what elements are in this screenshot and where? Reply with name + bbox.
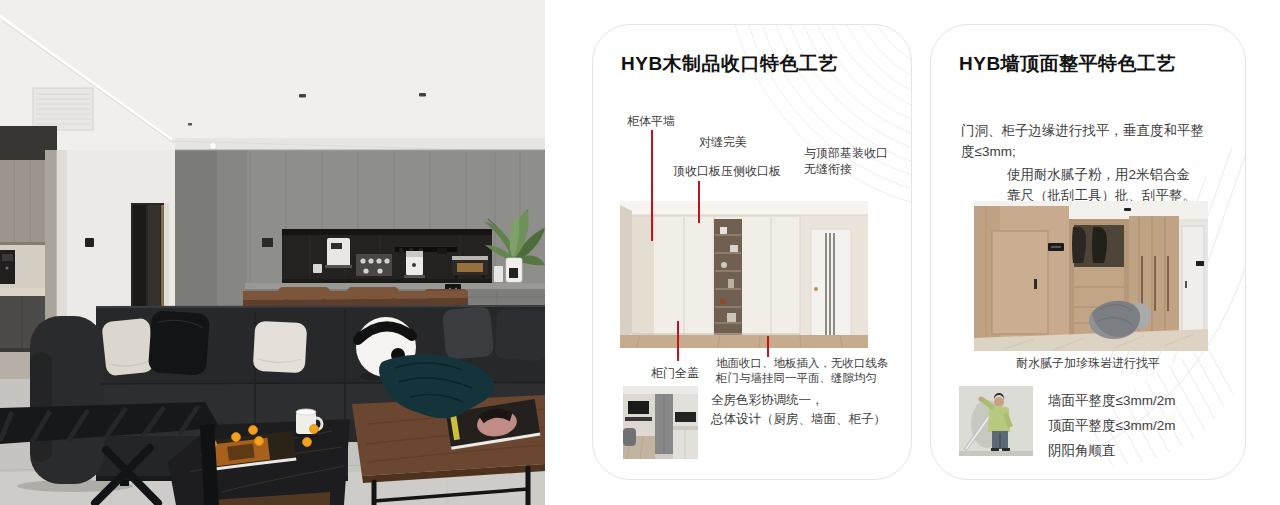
coffee-machine [327, 238, 350, 267]
callout-line [698, 181, 700, 223]
spec-wall-flatness: 墙面平整度≤3mm/2m [1048, 388, 1175, 413]
card-wall-leveling-process: HYB墙顶面整平特色工艺 门洞、柜子边缘进行找平，垂直度和平整 度≤3mm; 使… [930, 24, 1246, 480]
card-woodwork-process: HYB木制品收口特色工艺 柜体平墙 对缝完美 顶收口板压侧收口板 与顶部基装收口… [592, 24, 912, 480]
hallway-render-image [974, 201, 1208, 351]
callout-line [677, 321, 679, 361]
wardrobe-render-image [620, 201, 868, 348]
wall-thermostat [262, 238, 273, 247]
callout-full-overlay-door: 柜门全盖 [651, 365, 699, 382]
coffee-niche [282, 229, 492, 283]
callout-perfect-seam: 对缝完美 [699, 134, 747, 151]
room-door [811, 229, 851, 339]
plaster-worker-thumb-image [959, 386, 1033, 456]
card-title: HYB木制品收口特色工艺 [621, 51, 838, 77]
callout-ceiling-joint: 与顶部基装收口 无缝衔接 [804, 145, 888, 177]
note-color-design: 全房色彩协调统一， 总体设计（厨房、墙面、柜子） [711, 391, 886, 428]
living-room-photo [0, 0, 545, 505]
open-shelf-unit [714, 219, 742, 336]
callout-line [767, 336, 769, 357]
spec-ceiling-flatness: 顶面平整度≤3mm/2m [1048, 413, 1175, 438]
callout-top-closing-board: 顶收口板压侧收口板 [673, 163, 781, 180]
living-room-photo-art [0, 0, 545, 505]
para-edge-leveling: 门洞、柜子边缘进行找平，垂直度和平整 度≤3mm; [961, 120, 1204, 162]
dark-door [133, 205, 146, 311]
page: HYB木制品收口特色工艺 柜体平墙 对缝完美 顶收口板压侧收口板 与顶部基装收口… [0, 0, 1280, 505]
callout-line [651, 130, 653, 241]
niche-rail [395, 247, 457, 252]
note-floor-closing: 地面收口、地板插入，无收口线条 柜门与墙挂同一平面、缝隙均匀 [716, 356, 889, 385]
record-player [452, 256, 488, 278]
built-in-oven [0, 250, 15, 284]
card-title: HYB墙顶面整平特色工艺 [959, 51, 1176, 77]
para-putty-tools: 使用耐水腻子粉，用2米铝合金 靠尺（批刮工具）批、刮平整。 [1007, 164, 1196, 206]
cup-rack [356, 254, 392, 276]
interior-thumb-image [623, 386, 698, 459]
spec-list: 墙面平整度≤3mm/2m 顶面平整度≤3mm/2m 阴阳角顺直 [1048, 388, 1175, 463]
callout-cabinet-flush-wall: 柜体平墙 [627, 113, 675, 130]
espresso-machine [404, 251, 425, 278]
light-switch [85, 238, 94, 247]
process-panel: HYB木制品收口特色工艺 柜体平墙 对缝完美 顶收口板压侧收口板 与顶部基装收口… [545, 0, 1280, 505]
ac-vent-grille [33, 88, 93, 130]
wood-wall-door [974, 206, 1069, 338]
spec-corner-straight: 阴阳角顺直 [1048, 438, 1175, 463]
caption-putty-leveling: 耐水腻子加珍珠岩进行找平 [1016, 355, 1160, 372]
